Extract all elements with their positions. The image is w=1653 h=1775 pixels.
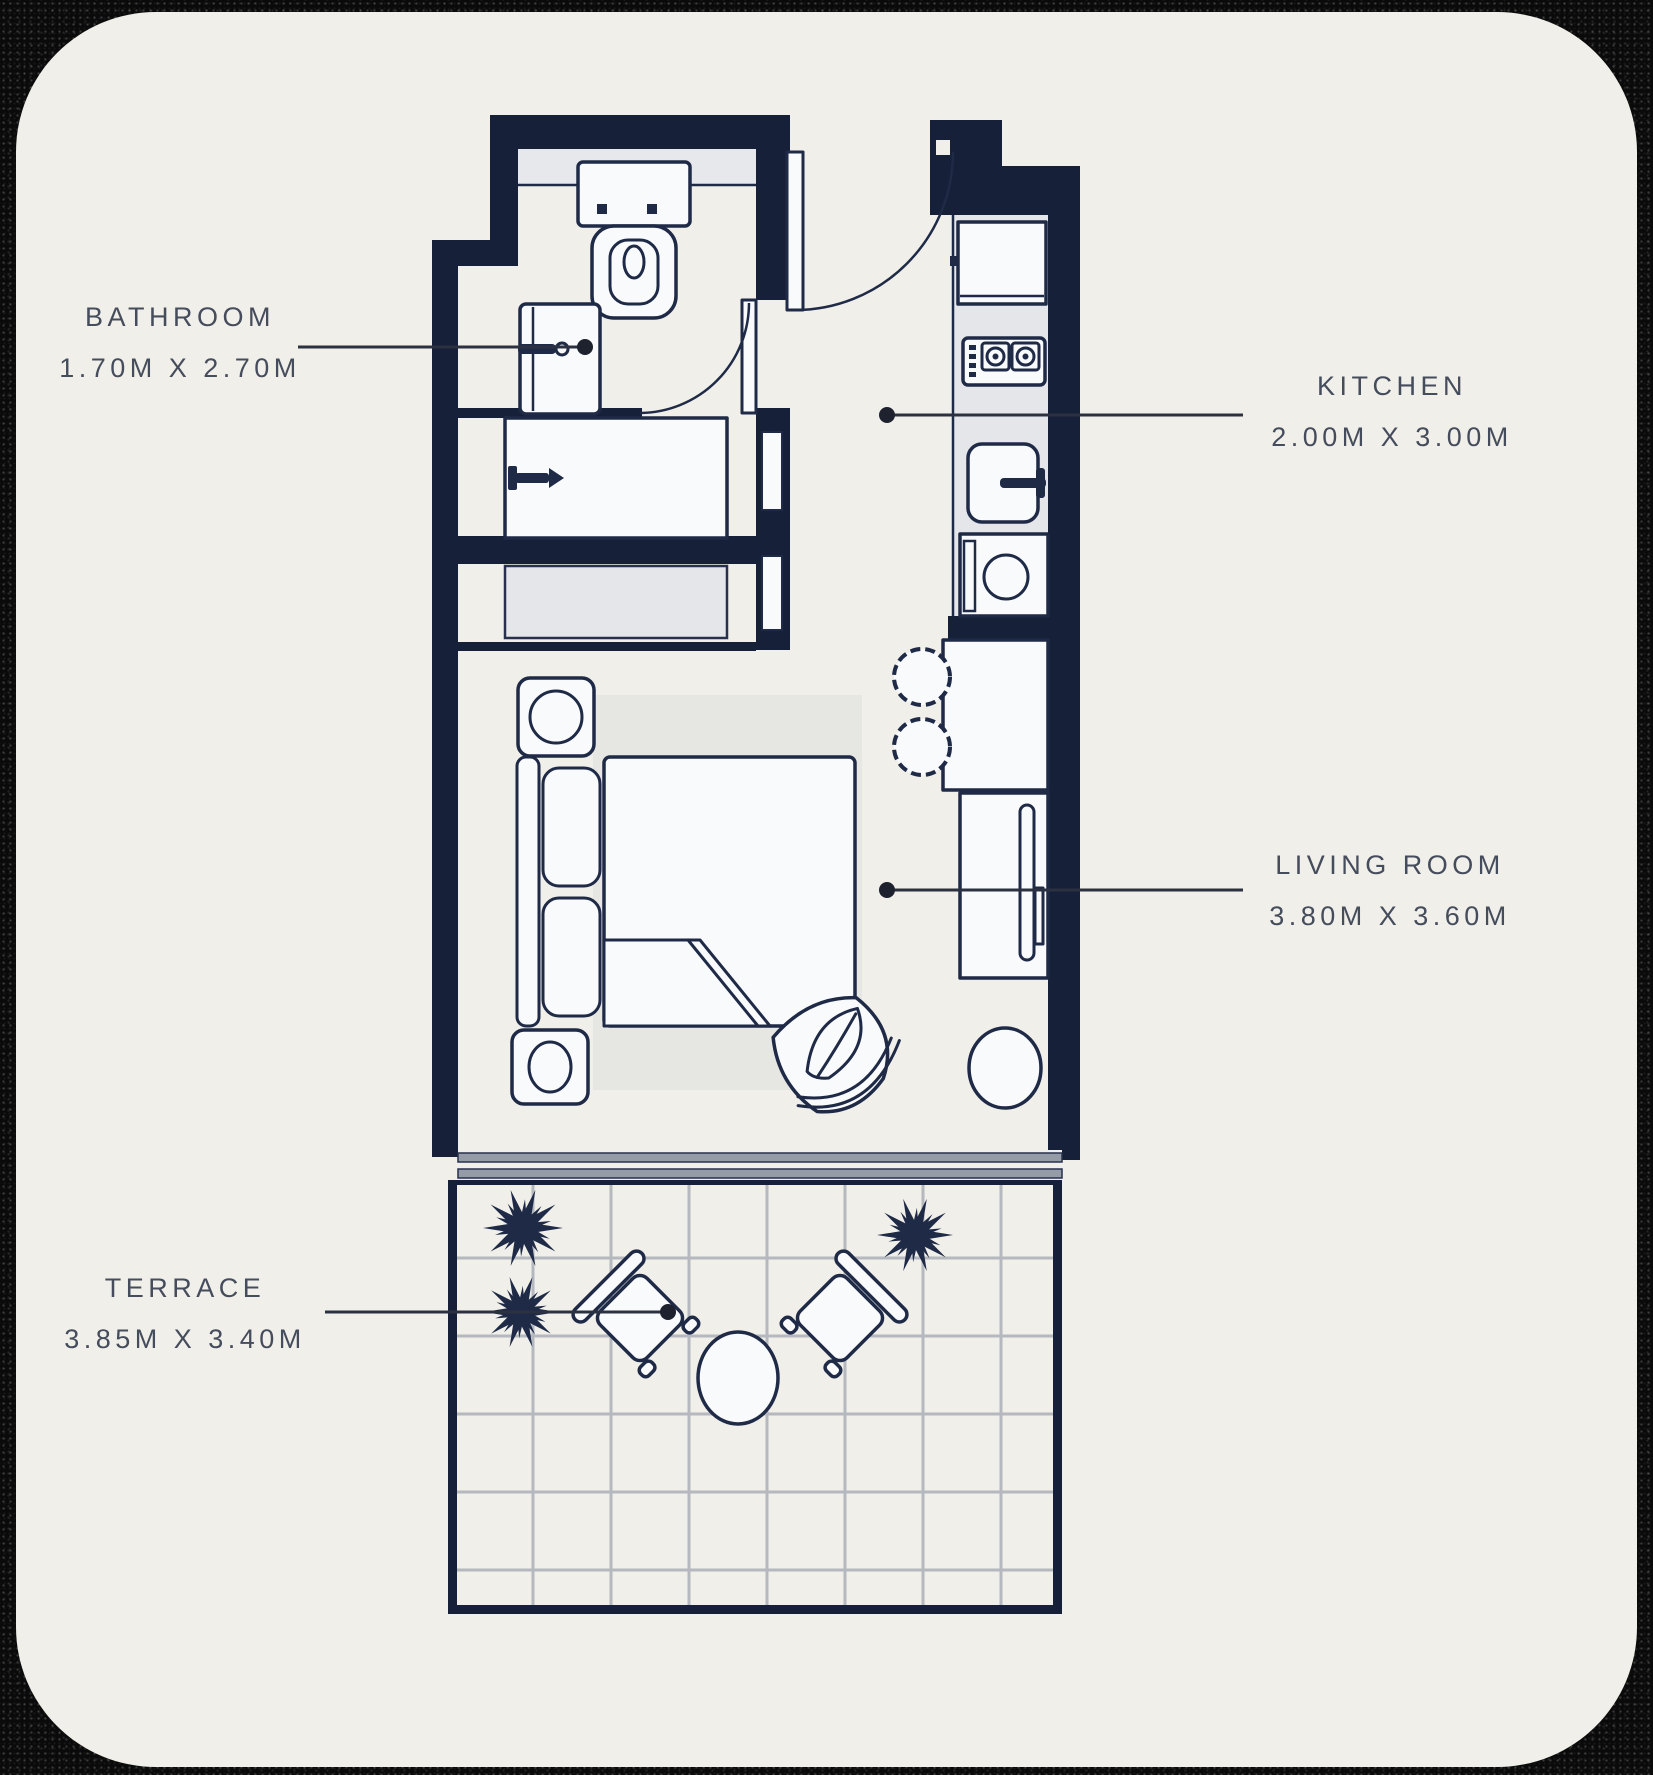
entry-hinge-notch <box>936 140 950 155</box>
bathroom-name: BATHROOM <box>85 303 275 333</box>
terrace-leader-dot <box>660 1304 676 1320</box>
side-table-icon <box>969 1028 1041 1108</box>
wall-kitchen-right <box>1048 215 1080 640</box>
kitchen-label: KITCHEN 2.00M X 3.00M <box>1242 372 1542 452</box>
outdoor-chair-icon <box>774 1248 910 1384</box>
kitchen-name: KITCHEN <box>1317 372 1467 402</box>
kitchen-sink-icon <box>968 444 1046 522</box>
living-room-leader-dot <box>879 882 895 898</box>
terrace-dims: 3.85M X 3.40M <box>64 1325 306 1355</box>
headboard <box>517 757 539 1026</box>
terrace-name: TERRACE <box>105 1274 266 1304</box>
terrace-top-edge <box>448 1180 1062 1185</box>
wall-niche <box>762 556 782 630</box>
wall-left-main <box>432 240 458 1157</box>
floor-plan-page: BATHROOM 1.70M X 2.70M KITCHEN 2.00M X 3… <box>0 0 1653 1775</box>
nightstand-icon <box>512 1030 588 1104</box>
sliding-door-icon <box>458 1150 1062 1184</box>
terrace-label: TERRACE 3.85M X 3.40M <box>35 1274 335 1354</box>
wall-niche <box>762 432 782 510</box>
wall-kitchen-bottom <box>948 616 1080 640</box>
wardrobe-icon <box>505 566 727 638</box>
pillow-icon <box>543 898 600 1016</box>
terrace-bottom-wall <box>448 1605 1062 1614</box>
nightstand-icon <box>518 678 594 756</box>
wall-living-right <box>1048 640 1080 1160</box>
fridge-icon <box>950 222 1046 304</box>
breakfast-counter <box>943 640 1048 790</box>
bathroom-label: BATHROOM 1.70M X 2.70M <box>30 303 330 383</box>
pillow-icon <box>543 768 600 886</box>
terrace-left-wall <box>448 1180 457 1614</box>
slider-rail-bottom <box>458 1169 1062 1178</box>
bathroom-dims: 1.70M X 2.70M <box>59 354 301 384</box>
shower-area <box>505 418 727 538</box>
wall-closet-bottom <box>458 642 756 651</box>
terrace-right-wall <box>1053 1180 1062 1614</box>
tv-icon <box>1020 805 1034 960</box>
bathroom-vanity-icon <box>518 304 600 414</box>
outdoor-chair-icon <box>570 1248 706 1384</box>
entry-door-leaf <box>787 152 803 310</box>
tv-bracket <box>1035 888 1043 944</box>
washing-machine-icon <box>960 534 1048 616</box>
living-room-name: LIVING ROOM <box>1275 851 1505 881</box>
bathroom-area <box>518 149 756 414</box>
bathroom-leader-dot <box>577 339 593 355</box>
entry-door <box>787 152 953 310</box>
plant-icon <box>483 1190 563 1266</box>
wall-entry-post <box>930 120 1002 215</box>
stove-icon <box>963 338 1045 385</box>
living-room-label: LIVING ROOM 3.80M X 3.60M <box>1240 851 1540 931</box>
bar-stool-icon <box>894 649 950 705</box>
wall-shower-closet-divider <box>458 536 756 564</box>
wall-bathroom-top <box>490 115 790 149</box>
kitchen-leader-dot <box>879 407 895 423</box>
kitchen-dims: 2.00M X 3.00M <box>1271 423 1513 453</box>
wall-kitchen-top <box>1002 166 1080 215</box>
door-swing-icon <box>795 152 953 310</box>
slider-rail-top <box>458 1153 1062 1162</box>
outdoor-table-icon <box>698 1332 778 1424</box>
wall-bathroom-right <box>756 115 790 300</box>
living-room-dims: 3.80M X 3.60M <box>1269 902 1511 932</box>
bar-stool-icon <box>894 719 950 775</box>
plant-icon <box>877 1199 953 1271</box>
bed-icon <box>517 757 855 1026</box>
toilet-icon <box>578 162 690 318</box>
